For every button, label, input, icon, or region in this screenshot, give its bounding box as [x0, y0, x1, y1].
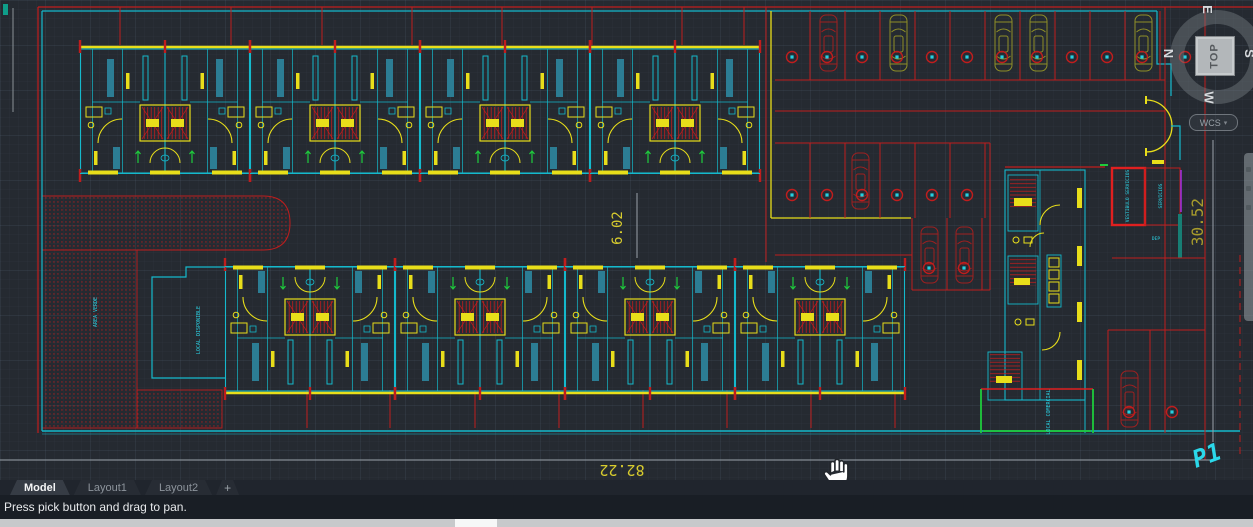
pan-icon[interactable]: [1246, 167, 1251, 172]
dim-height-text: 30.52: [1188, 198, 1207, 246]
building-right: [981, 160, 1205, 433]
tab-model[interactable]: Model: [10, 480, 70, 495]
sheet-label-text: P1: [1188, 437, 1225, 473]
orbit-icon[interactable]: [1246, 205, 1251, 210]
new-layout-button[interactable]: +: [216, 480, 239, 495]
autocad-window: 6.02 82.22 30.52 P1 AREA VERDE LOCAL DIS…: [0, 0, 1253, 527]
navigation-bar[interactable]: [1244, 153, 1253, 321]
dim-width-text: 82.22: [599, 461, 644, 479]
model-space-canvas[interactable]: 6.02 82.22 30.52 P1 AREA VERDE LOCAL DIS…: [0, 0, 1253, 480]
plus-icon: +: [224, 481, 231, 495]
building-upper: [79, 40, 761, 182]
tab-model-label: Model: [24, 482, 56, 494]
layout-tab-bar: Model Layout1 Layout2 +: [0, 480, 1253, 495]
tab-layout1-label: Layout1: [88, 482, 127, 494]
dim-gap-text: 6.02: [610, 211, 626, 245]
tab-layout2-label: Layout2: [159, 482, 198, 494]
tab-layout2[interactable]: Layout2: [145, 480, 212, 495]
viewcube-south[interactable]: S: [1242, 49, 1253, 58]
building-lower: [152, 258, 906, 400]
green-area-label: AREA VERDE: [93, 297, 99, 327]
wcs-label: WCS: [1200, 118, 1221, 128]
site-plan-drawing: 6.02 82.22 30.52 P1 AREA VERDE LOCAL DIS…: [0, 0, 1253, 480]
chevron-down-icon: ▾: [1224, 119, 1228, 127]
viewcube-north[interactable]: N: [1161, 49, 1176, 58]
wcs-dropdown[interactable]: WCS ▾: [1189, 114, 1238, 131]
bottom-strip-highlight: [455, 519, 497, 527]
bottom-window-strip: [0, 519, 1253, 527]
viewcube-east[interactable]: E: [1200, 5, 1215, 14]
side-room-label: SERVICIOS: [1158, 183, 1164, 208]
tab-layout1[interactable]: Layout1: [74, 480, 141, 495]
viewcube-top-label: TOP: [1209, 43, 1221, 68]
zoom-icon[interactable]: [1246, 186, 1251, 191]
shop-right-label: LOCAL COMERCIAL: [1046, 389, 1052, 434]
status-bar: Press pick button and drag to pan.: [0, 495, 1253, 519]
shop-left-label: LOCAL DISPONIBLE: [196, 306, 202, 354]
service-room-label: VESTIBULO SERVICIOS: [1125, 169, 1131, 222]
status-message: Press pick button and drag to pan.: [4, 500, 187, 514]
viewcube-top-face[interactable]: TOP: [1195, 36, 1235, 76]
viewcube-west[interactable]: W: [1202, 91, 1217, 103]
small-room-label: DEP: [1152, 236, 1160, 242]
